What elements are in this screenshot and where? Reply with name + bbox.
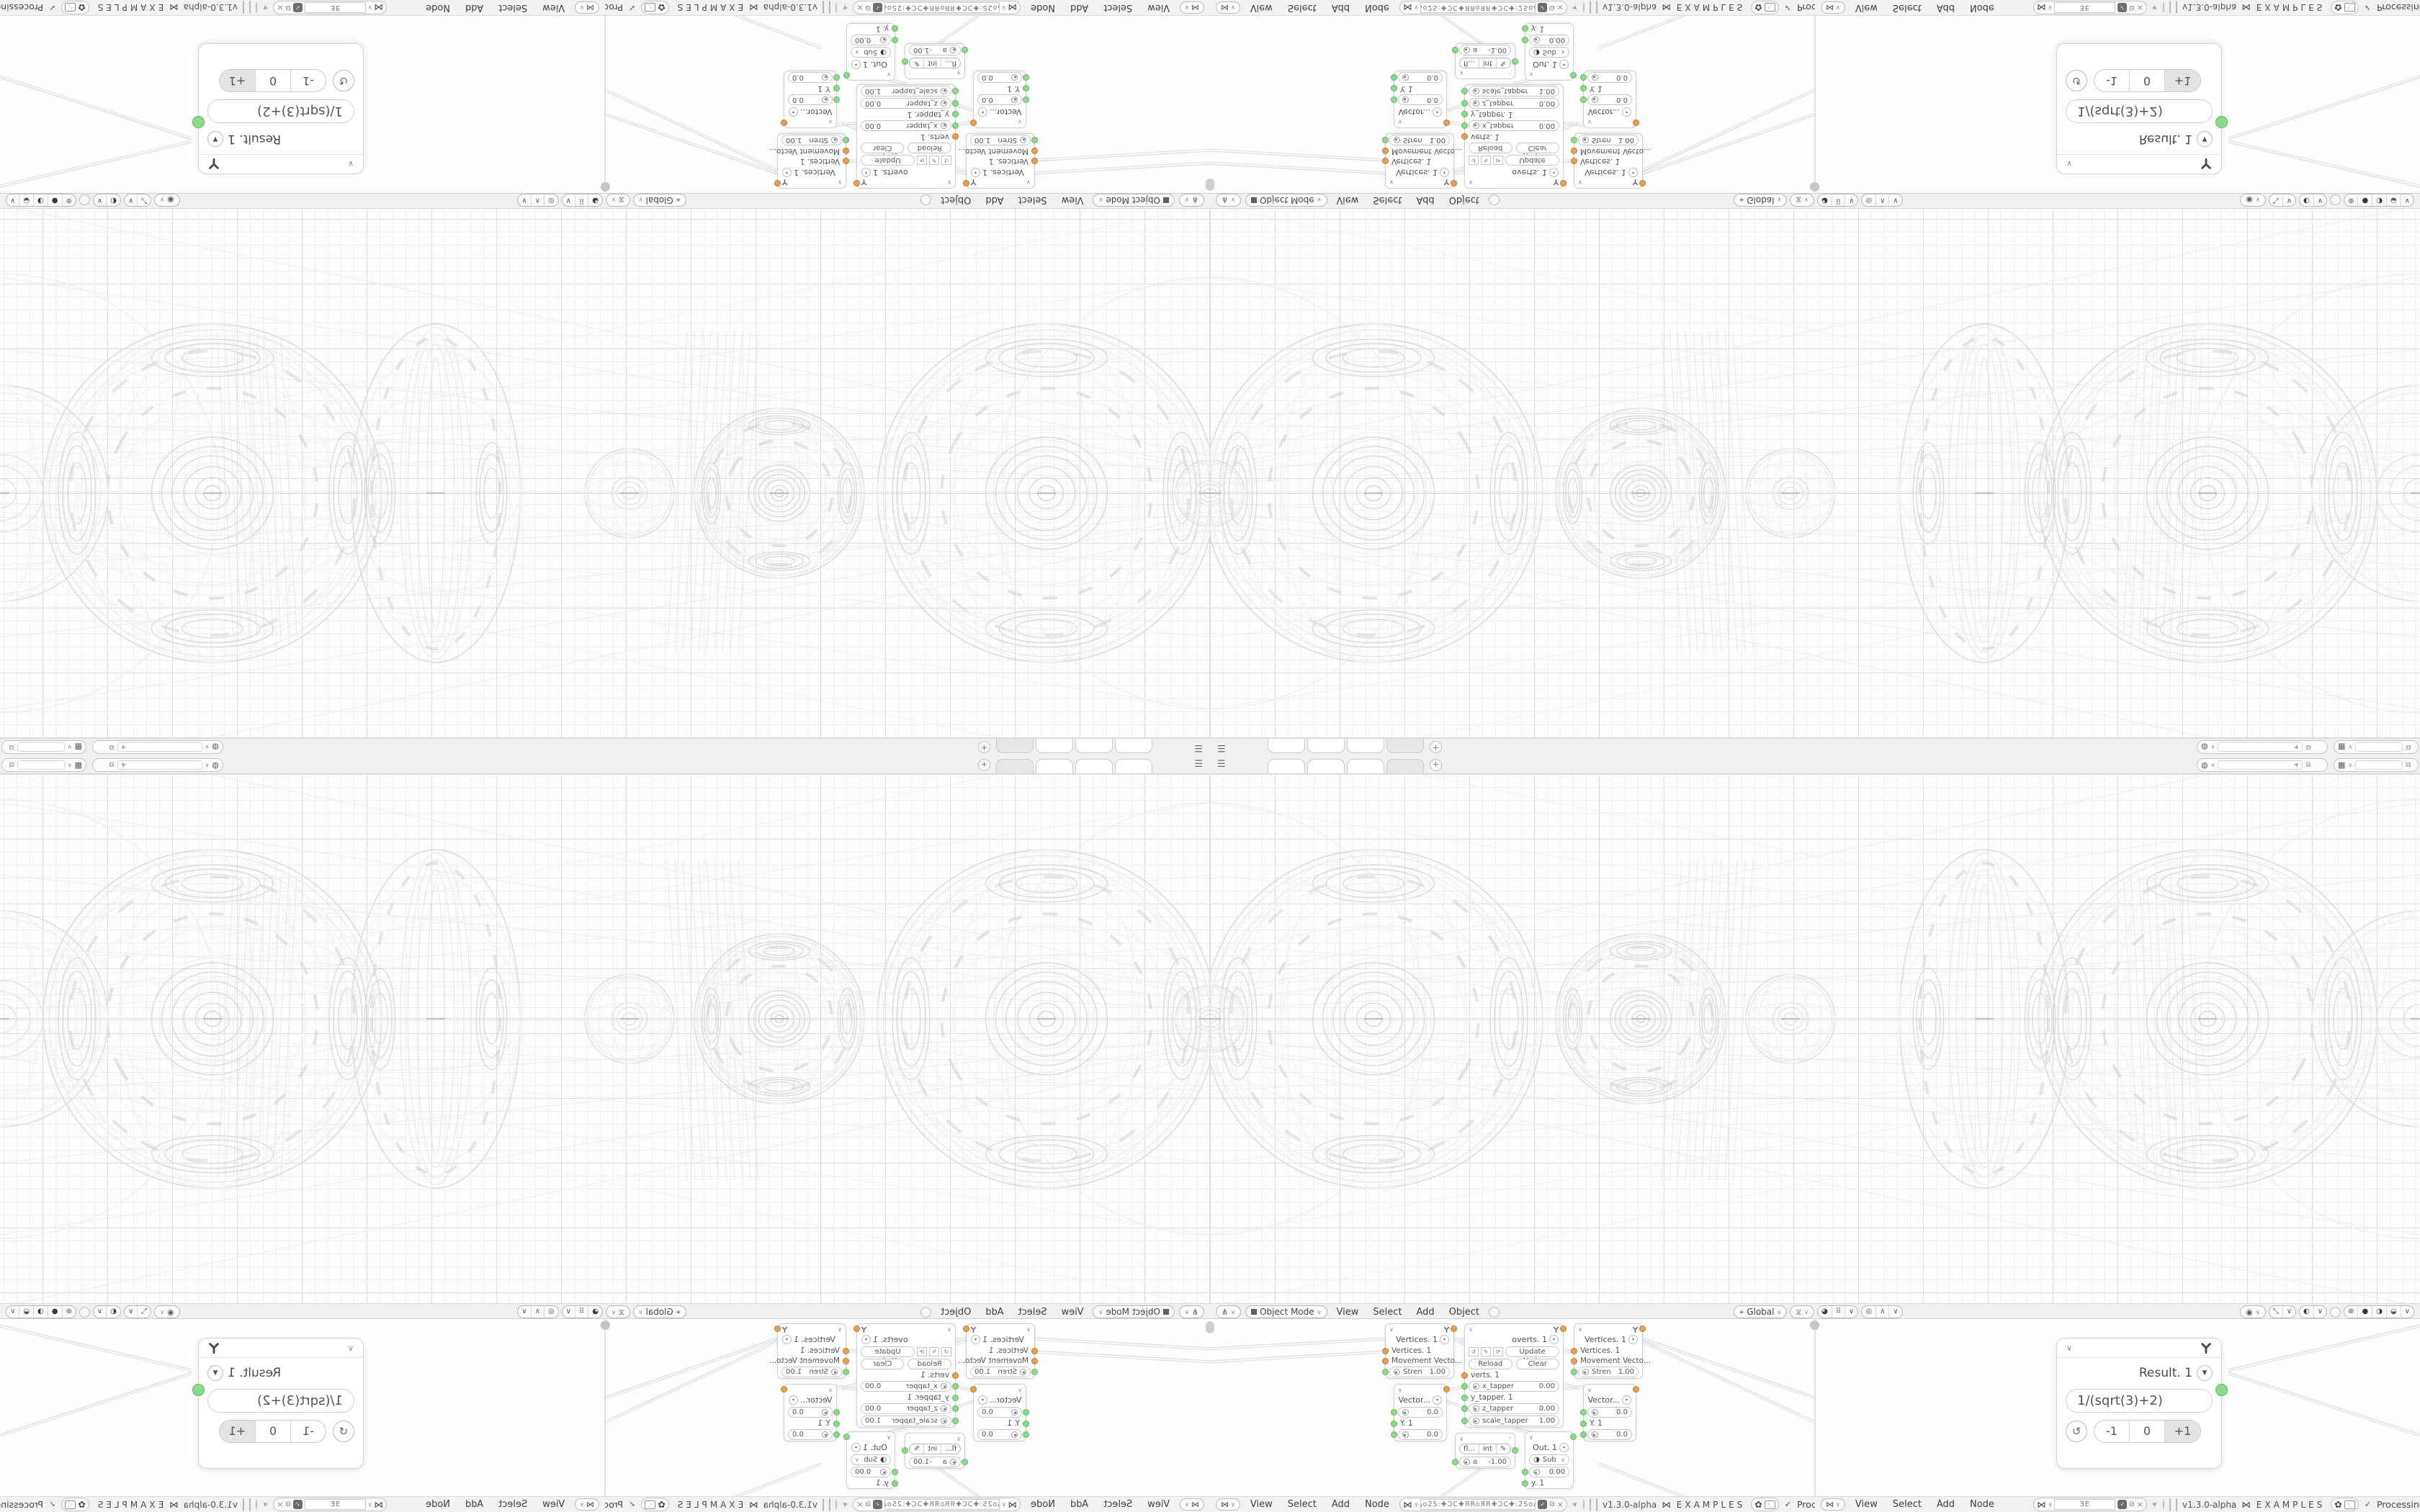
x-field[interactable]: 0.0 [1398, 1407, 1443, 1418]
collapse-icon[interactable]: ∨ [348, 1344, 354, 1353]
output-socket[interactable] [1570, 72, 1577, 78]
node-type-switch[interactable]: ∨· fl...int✎▾ a-1.00 [1455, 43, 1515, 79]
menu-select[interactable]: Select [1888, 1499, 1927, 1510]
scale-tapper-field[interactable]: scale_tapper1.00 [1469, 86, 1559, 96]
title-dropdown[interactable]: ▾ [861, 168, 871, 177]
tab-3[interactable] [1347, 759, 1384, 773]
input-socket[interactable] [952, 133, 959, 140]
copy-icon[interactable]: ⧉ [109, 761, 114, 769]
menu-add[interactable]: Add [1932, 2, 1960, 13]
input-socket[interactable] [952, 1372, 959, 1379]
node-type-switch[interactable]: ∨· fl...int✎▾ a-1.00 [1455, 1433, 1515, 1469]
result-output-socket[interactable] [2215, 116, 2228, 128]
gizmo-control[interactable]: ⤡∨ [124, 1305, 151, 1318]
plus-one-button[interactable]: +1 [220, 1421, 255, 1442]
collapse-icon[interactable]: ∨ [348, 160, 354, 169]
result-panel[interactable]: ∨ Result. 1▼ 1/(sqrt(3)+2) ↺ -1 0 +1 [2056, 1338, 2222, 1469]
input-socket[interactable] [952, 111, 959, 117]
editor-type-button[interactable]: ⋔∨ [1179, 194, 1204, 207]
output-socket[interactable] [1512, 58, 1518, 65]
area-corner-handle[interactable] [1206, 1321, 1210, 1333]
menu-view[interactable]: View [1057, 1307, 1089, 1318]
op-dropdown[interactable]: ◑Sub∨ [851, 1454, 891, 1465]
input-socket[interactable] [1031, 148, 1038, 154]
menu-add[interactable]: Add [1412, 1307, 1440, 1318]
datablock-selector[interactable]: ◍∨ ➤ ⧉ [2197, 740, 2328, 754]
collapse-icon[interactable]: ∨ [2066, 160, 2072, 169]
close-icon[interactable]: × [2136, 3, 2143, 12]
node-out[interactable]: ∨ Out. 1▾ ◑Sub∨ 0.00 y. 1 [1525, 23, 1574, 81]
z-tapper-field[interactable]: z_tapper0.00 [1469, 98, 1559, 109]
input-socket[interactable] [843, 148, 849, 154]
type-segmented-control[interactable]: fl...int✎▾ [909, 58, 961, 68]
a-field[interactable]: a-1.00 [909, 1457, 961, 1467]
mode-dropdown[interactable]: Object Mode∨ [1245, 194, 1327, 207]
circle-toggle[interactable] [2163, 1499, 2164, 1510]
input-socket[interactable] [1571, 1358, 1577, 1364]
cycle-icon[interactable]: ↺ [2066, 70, 2087, 91]
value-field[interactable]: 0.00 [1529, 1467, 1569, 1477]
image-selector[interactable]: ▦∨ ⧉ [2334, 758, 2419, 772]
input-socket[interactable] [1031, 1369, 1038, 1375]
result-panel[interactable]: ∨ Result. 1▼ 1/(sqrt(3)+2) ↺ -1 0 +1 [198, 1338, 364, 1469]
editor-type-button[interactable]: ⋈∨ [1821, 1, 1845, 14]
input-socket[interactable] [1391, 96, 1397, 103]
collapse-icon[interactable]: ∨ [1469, 1326, 1473, 1333]
filter-field[interactable]: oΔo2S:✚ƆC✚ЯRoЯR✚ƆC✚:2SoΔo [884, 1499, 1000, 1510]
op-dropdown[interactable]: ◑Sub∨ [851, 47, 891, 58]
menu-select[interactable]: Select [1283, 1499, 1322, 1510]
orientation-dropdown[interactable]: ⌖Global∨ [633, 1305, 686, 1318]
tab-4-active[interactable] [1386, 759, 1424, 773]
snap-control[interactable]: ◕⠿∨ [1817, 1305, 1858, 1318]
a-field[interactable]: a-1.00 [909, 45, 961, 55]
menu-object[interactable]: Object [1444, 1307, 1484, 1318]
menu-object[interactable]: Object [1444, 195, 1484, 206]
title-dropdown[interactable]: ▾ [851, 60, 861, 69]
refresh-icon[interactable]: ⟳ [1493, 1347, 1503, 1356]
datablock-field[interactable]: ➤ [117, 760, 202, 770]
stren-field[interactable]: Stren1.00 [970, 135, 1031, 145]
plus-one-button[interactable]: +1 [2165, 70, 2200, 91]
terminal-icon[interactable]: ›_ [65, 4, 76, 12]
datablock-field[interactable]: ➤ [2218, 760, 2303, 770]
output-socket[interactable] [1560, 1326, 1567, 1332]
title-dropdown[interactable]: ▾ [1433, 107, 1442, 117]
menu-add[interactable]: Add [1065, 2, 1093, 13]
copy-icon[interactable]: ⧉ [286, 1500, 291, 1508]
title-dropdown[interactable]: ▾ [861, 1335, 871, 1344]
menu-select[interactable]: Select [1098, 2, 1137, 13]
result-output-socket[interactable] [192, 116, 205, 128]
z-tapper-field[interactable]: z_tapper0.00 [861, 1403, 951, 1414]
input-socket[interactable] [1461, 133, 1468, 140]
title-dropdown[interactable]: ▾ [1622, 107, 1631, 117]
shield-check-icon[interactable]: ✓ [293, 3, 302, 12]
filter-field[interactable]: oΔo2S:✚ƆC✚ЯRoЯR✚ƆC✚:2SoΔo [1420, 2, 1536, 13]
refresh-icon[interactable]: ⟳ [917, 1347, 927, 1356]
input-socket[interactable] [1023, 1421, 1029, 1427]
node-vertices-2[interactable]: ∨ Vertices. 1▾ Vertices. 1 Movement Vect… [777, 1323, 846, 1379]
menu-icon[interactable]: ☰ [1194, 759, 1203, 770]
editor-type-button[interactable]: ⋔∨ [1179, 1305, 1204, 1318]
collapse-icon[interactable]: ∨ [1018, 1387, 1022, 1393]
output-socket[interactable] [1633, 1386, 1639, 1392]
circle-toggle[interactable] [835, 2, 837, 13]
reload-button[interactable]: Reload [908, 1359, 952, 1369]
clear-button[interactable]: Clear [861, 1359, 905, 1369]
collapse-icon[interactable]: ∨ [1026, 180, 1031, 186]
input-socket[interactable] [892, 1469, 898, 1475]
snap-control[interactable]: ◕⠿∨ [1817, 194, 1858, 207]
undo-icon[interactable]: ↺ [941, 156, 951, 165]
input-socket[interactable] [1023, 74, 1029, 81]
undo-icon[interactable]: ↺ [1469, 1347, 1479, 1356]
collapse-icon[interactable]: ∨ [1389, 180, 1394, 186]
input-socket[interactable] [843, 1369, 849, 1375]
menu-add[interactable]: Add [1065, 1499, 1093, 1510]
input-socket[interactable] [952, 122, 959, 129]
snap-control[interactable]: ◕⠿∨ [2169, 1498, 2171, 1511]
snap-control[interactable]: ◕⠿∨ [562, 1305, 603, 1318]
menu-node[interactable]: Node [1026, 1499, 1060, 1510]
filter-field[interactable]: ƎE [305, 1499, 366, 1510]
input-socket[interactable] [1382, 1348, 1389, 1354]
shield-check-icon[interactable]: ✓ [1538, 3, 1547, 12]
close-icon[interactable]: × [277, 1500, 283, 1509]
filter-field[interactable]: ƎE [2054, 2, 2115, 13]
input-socket[interactable] [833, 1431, 840, 1438]
minus-one-button[interactable]: -1 [2094, 70, 2130, 91]
pin-icon[interactable]: ➤ [2150, 1500, 2160, 1510]
op-dropdown[interactable]: ◑Sub∨ [1529, 47, 1569, 58]
overlay-control[interactable]: ◐∨ [93, 1305, 121, 1318]
collapse-icon[interactable]: ∨ [956, 71, 961, 77]
update-node-button[interactable]: Update Node [861, 155, 915, 166]
input-socket[interactable] [952, 1418, 959, 1424]
input-socket[interactable] [1452, 47, 1458, 53]
area-divider[interactable] [604, 16, 606, 193]
xray-circle-icon[interactable] [79, 1307, 90, 1318]
title-dropdown[interactable]: ▾ [1559, 60, 1569, 69]
terminal-icon[interactable]: ›_ [65, 1500, 76, 1509]
pin-icon[interactable]: ➤ [260, 1500, 270, 1510]
undo-icon[interactable]: ↺ [1469, 156, 1479, 165]
view-object-types-button[interactable]: ◉∨ [2240, 194, 2265, 207]
close-icon[interactable]: × [1556, 3, 1563, 12]
input-socket[interactable] [833, 1421, 840, 1427]
pivot-dropdown[interactable]: ⧖∨ [606, 194, 630, 207]
node-vertices-2[interactable]: ∨ Vertices. 1▾ Vertices. 1 Movement Vect… [1574, 1323, 1643, 1379]
node-overts[interactable]: ∨ overts. 1▾ ↺✎⟳ Update Node Reload Clea… [856, 1323, 956, 1428]
filter-field[interactable]: ƎE [2054, 1499, 2115, 1510]
z-field[interactable]: 0.0 [1587, 1429, 1632, 1440]
title-dropdown[interactable]: ▾ [782, 1335, 792, 1344]
z-field[interactable]: 0.0 [977, 1429, 1022, 1440]
menu-view[interactable]: View [1332, 195, 1364, 206]
menu-node[interactable]: Node [1965, 2, 1999, 13]
value-field[interactable]: 0.00 [851, 35, 891, 45]
output-socket[interactable] [902, 1447, 908, 1454]
image-field[interactable] [17, 760, 65, 770]
node-out[interactable]: ∨ Out. 1▾ ◑Sub∨ 0.00 y. 1 [846, 1431, 895, 1489]
viewport-3d[interactable] [1210, 209, 2420, 738]
title-dropdown[interactable]: ▾ [978, 107, 987, 117]
add-tab-button[interactable]: + [1430, 759, 1442, 771]
node-vector-2[interactable]: ∨ Vector...▾ 0.0 Y. 1 0.0 [784, 1384, 837, 1441]
flower-icon[interactable]: ✿ [78, 1499, 85, 1510]
input-socket[interactable] [1522, 37, 1528, 43]
area-divider-handle[interactable] [1810, 1320, 1819, 1330]
input-socket[interactable] [1522, 25, 1528, 32]
title-dropdown[interactable]: ▾ [1628, 168, 1638, 177]
xray-circle-icon[interactable] [2330, 1307, 2341, 1318]
update-node-button[interactable]: Update Node [1505, 155, 1559, 166]
x-tapper-field[interactable]: x_tapper0.00 [1469, 1381, 1559, 1392]
menu-add[interactable]: Add [1327, 1499, 1355, 1510]
minus-one-button[interactable]: -1 [290, 1421, 326, 1442]
menu-icon[interactable]: ☰ [1194, 742, 1203, 753]
image-selector[interactable]: ▦∨ ⧉ [1, 758, 86, 772]
input-socket[interactable] [1461, 111, 1468, 117]
input-socket[interactable] [1031, 137, 1038, 143]
node-vertices-2[interactable]: ∨ Vertices. 1▾ Vertices. 1 Movement Vect… [1574, 133, 1643, 189]
expression-field[interactable]: 1/(sqrt(3)+2) [2066, 1389, 2213, 1413]
view-object-types-button[interactable]: ◉∨ [2240, 1305, 2265, 1318]
output-socket[interactable] [1639, 1326, 1646, 1332]
datablock-field[interactable]: ➤ [117, 742, 202, 752]
tab-3[interactable] [1347, 739, 1384, 753]
terminal-icon[interactable]: ›_ [2344, 1500, 2355, 1509]
result-dropdown[interactable]: ▼ [207, 1365, 223, 1381]
input-socket[interactable] [1382, 1369, 1389, 1375]
datablock-selector[interactable]: ◍∨ ➤ ⧉ [92, 740, 223, 754]
menu-view[interactable]: View [1142, 2, 1175, 13]
result-dropdown[interactable]: ▼ [2197, 131, 2213, 147]
collapse-icon[interactable]: ∨ [1459, 71, 1464, 77]
snap-control[interactable]: ◕⠿∨ [249, 1, 251, 14]
menu-view[interactable]: View [1245, 1499, 1278, 1510]
input-socket[interactable] [1580, 1409, 1587, 1416]
output-socket[interactable] [1570, 1434, 1577, 1440]
shading-mode-control[interactable]: ⊕●◑◒∨ [2344, 194, 2414, 207]
x-field[interactable]: 0.0 [788, 1407, 833, 1418]
shield-check-icon[interactable]: ✓ [2117, 3, 2127, 12]
orientation-dropdown[interactable]: ⌖Global∨ [633, 194, 686, 207]
circle-toggle[interactable] [2163, 2, 2164, 13]
menu-view[interactable]: View [1245, 2, 1278, 13]
area-divider-handle[interactable] [601, 1320, 610, 1330]
node-type-switch[interactable]: ∨· fl...int✎▾ a-1.00 [905, 1433, 965, 1469]
node-overts[interactable]: ∨ overts. 1▾ ↺✎⟳ Update Node Reload Clea… [1464, 1323, 1564, 1428]
refresh-icon[interactable]: ⟳ [1493, 156, 1503, 165]
output-socket[interactable] [853, 1326, 860, 1332]
input-socket[interactable] [1571, 1369, 1577, 1375]
add-tab-button[interactable]: + [978, 759, 990, 771]
input-socket[interactable] [1461, 100, 1468, 107]
output-socket[interactable] [1451, 180, 1457, 186]
proportional-edit-control[interactable]: ◎∧∨ [1861, 194, 1902, 207]
circle-toggle[interactable] [835, 1499, 837, 1510]
input-socket[interactable] [1031, 1358, 1038, 1364]
input-socket[interactable] [1382, 148, 1389, 154]
node-vertices-1[interactable]: ∨ Vertices. 1▾ Vertices. 1 Movement Vect… [966, 1323, 1035, 1379]
area-divider[interactable] [1814, 16, 1816, 193]
node-vector-2[interactable]: ∨ Vector...▾ 0.0 Y. 1 0.0 [784, 71, 837, 128]
output-socket[interactable] [1560, 180, 1567, 186]
pivot-dropdown[interactable]: ⧖∨ [606, 1305, 630, 1318]
node-overts[interactable]: ∨ overts. 1▾ ↺✎⟳ Update Node Reload Clea… [1464, 84, 1564, 189]
copy-icon[interactable]: ⧉ [1549, 4, 1554, 12]
copy-icon[interactable]: ⧉ [866, 1500, 871, 1508]
node-editor-region[interactable]: ∨ Vertices. 1▾ Vertices. 1 Movement Vect… [1210, 16, 2420, 193]
datablock-field[interactable]: ➤ [2218, 742, 2303, 752]
image-selector[interactable]: ▦∨ ⧉ [2334, 740, 2419, 754]
output-socket[interactable] [853, 180, 860, 186]
z-field[interactable]: 0.0 [1398, 72, 1443, 83]
clear-button[interactable]: Clear [1516, 1359, 1560, 1369]
input-socket[interactable] [1023, 1431, 1029, 1438]
gizmo-control[interactable]: ⤡∨ [2269, 194, 2296, 207]
collapse-icon[interactable]: ∨ [1469, 180, 1473, 186]
tab-2[interactable] [1307, 739, 1345, 753]
collapse-icon[interactable]: ∨ [828, 120, 833, 126]
pin-icon[interactable]: ➤ [260, 3, 270, 13]
type-segmented-control[interactable]: fl...int✎▾ [1459, 58, 1511, 68]
input-socket[interactable] [1031, 158, 1038, 164]
filter-field[interactable]: oΔo2S:✚ƆC✚ЯRoЯR✚ƆC✚:2SoΔo [1420, 1499, 1536, 1510]
pin-icon[interactable]: ➤ [118, 742, 128, 752]
flower-icon[interactable]: ✿ [78, 2, 85, 13]
editor-type-button[interactable]: ⋈∨ [1180, 1, 1204, 14]
circle-toggle[interactable] [256, 2, 257, 13]
input-socket[interactable] [1031, 1348, 1038, 1354]
flower-icon[interactable]: ✿ [658, 2, 665, 13]
collapse-icon[interactable]: ∨ [1026, 1326, 1031, 1333]
input-socket[interactable] [1571, 1348, 1577, 1354]
proportional-edit-control[interactable]: ◎∧∨ [517, 194, 558, 207]
node-vector[interactable]: ∨ Vector...▾ 0.0 Y. 1 0.0 [1394, 71, 1447, 128]
result-output-socket[interactable] [192, 1384, 205, 1396]
shading-mode-control[interactable]: ⊕●◑◒∨ [6, 1305, 76, 1318]
copy-icon[interactable]: ⧉ [1549, 1500, 1554, 1508]
input-socket[interactable] [1391, 74, 1397, 81]
orientation-dropdown[interactable]: ⌖Global∨ [1734, 1305, 1787, 1318]
circle-toggle[interactable] [256, 1499, 257, 1510]
input-socket[interactable] [1461, 1395, 1468, 1401]
input-socket[interactable] [833, 85, 840, 91]
collapse-icon[interactable]: ∨ [887, 1434, 891, 1441]
menu-view[interactable]: View [1850, 2, 1883, 13]
result-panel[interactable]: ∨ Result. 1▼ 1/(sqrt(3)+2) ↺ -1 0 +1 [2056, 43, 2222, 174]
stren-field[interactable]: Stren1.00 [1389, 135, 1450, 145]
input-socket[interactable] [1461, 122, 1468, 129]
pin-icon[interactable]: ➤ [118, 760, 128, 770]
plus-one-button[interactable]: +1 [2165, 1421, 2200, 1442]
editor-type-button[interactable]: ⋈∨ [575, 1498, 599, 1511]
output-socket[interactable] [1443, 1386, 1450, 1392]
reload-button[interactable]: Reload [908, 143, 952, 153]
circle-toggle[interactable] [1583, 1499, 1585, 1510]
editor-type-button[interactable]: ⋈∨ [1180, 1498, 1204, 1511]
mode-dropdown[interactable]: Object Mode∨ [1093, 194, 1174, 207]
filter-field[interactable]: ƎE [305, 2, 366, 13]
viewport-3d[interactable] [1210, 774, 2420, 1303]
title-dropdown[interactable]: ▾ [1440, 1335, 1449, 1344]
image-field[interactable] [17, 742, 65, 752]
cycle-icon[interactable]: ↺ [333, 1421, 354, 1442]
copy-icon[interactable]: ⧉ [2305, 743, 2311, 751]
node-vector[interactable]: ∨ Vector...▾ 0.0 Y. 1 0.0 [973, 1384, 1026, 1441]
editor-type-button[interactable]: ⋈∨ [1821, 1498, 1845, 1511]
output-socket[interactable] [963, 180, 969, 186]
menu-select[interactable]: Select [1368, 195, 1407, 206]
overlay-control[interactable]: ◐∨ [243, 1, 244, 14]
input-socket[interactable] [843, 158, 849, 164]
snap-control[interactable]: ◕⠿∨ [1590, 1, 1591, 14]
output-socket[interactable] [902, 58, 908, 65]
edit-icon[interactable]: ✎ [1481, 1347, 1491, 1356]
title-dropdown[interactable]: ▾ [1559, 1443, 1569, 1452]
title-dropdown[interactable]: ▾ [789, 107, 798, 117]
edit-icon[interactable]: ✎ [929, 156, 939, 165]
collapse-icon[interactable]: ∨ [1587, 1387, 1592, 1393]
scale-tapper-field[interactable]: scale_tapper1.00 [861, 1416, 951, 1426]
refresh-icon[interactable]: ⟳ [917, 156, 927, 165]
pivot-dropdown[interactable]: ⧖∨ [1790, 1305, 1814, 1318]
input-socket[interactable] [962, 1459, 968, 1465]
circle-toggle[interactable] [1583, 2, 1585, 13]
editor-type-button[interactable]: ⋈∨ [1216, 1, 1240, 14]
overlay-control[interactable]: ◐∨ [2299, 1305, 2327, 1318]
input-socket[interactable] [1023, 85, 1029, 91]
menu-add[interactable]: Add [980, 195, 1008, 206]
annotation-circle-icon[interactable] [920, 195, 931, 206]
menu-select[interactable]: Select [493, 1499, 532, 1510]
area-divider[interactable] [1814, 1319, 1816, 1496]
flower-icon[interactable]: ✿ [2334, 2, 2341, 13]
menu-add[interactable]: Add [460, 2, 488, 13]
collapse-icon[interactable]: ∨ [887, 72, 891, 78]
pin-icon[interactable]: ➤ [1570, 1500, 1580, 1510]
input-socket[interactable] [1580, 1431, 1587, 1438]
input-socket[interactable] [952, 1383, 959, 1390]
x-field[interactable]: 0.0 [1398, 94, 1443, 105]
collapse-icon[interactable]: ∨ [1587, 120, 1592, 126]
menu-view[interactable]: View [1057, 195, 1089, 206]
overlay-control[interactable]: ◐∨ [823, 1, 824, 14]
node-vertices-1[interactable]: ∨ Vertices. 1▾ Vertices. 1 Movement Vect… [1385, 1323, 1454, 1379]
shield-check-icon[interactable]: ✓ [293, 1500, 302, 1509]
node-vector-2[interactable]: ∨ Vector...▾ 0.0 Y. 1 0.0 [1583, 1384, 1636, 1441]
output-socket[interactable] [1639, 180, 1646, 186]
input-socket[interactable] [1023, 1409, 1029, 1416]
collapse-icon[interactable]: ∨ [947, 180, 951, 186]
orientation-dropdown[interactable]: ⌖Global∨ [1734, 194, 1787, 207]
update-node-button[interactable]: Update Node [861, 1346, 915, 1357]
input-socket[interactable] [1580, 1421, 1587, 1427]
cycle-icon[interactable]: ↺ [333, 70, 354, 91]
overlay-control[interactable]: ◐∨ [2176, 1, 2177, 14]
snap-control[interactable]: ◕⠿∨ [1590, 1498, 1591, 1511]
output-socket[interactable] [970, 120, 977, 126]
menu-select[interactable]: Select [1368, 1307, 1407, 1318]
tab-1[interactable] [1268, 739, 1305, 753]
input-socket[interactable] [1461, 88, 1468, 94]
snap-control[interactable]: ◕⠿∨ [829, 1, 830, 14]
collapse-icon[interactable]: ∨ [956, 1436, 961, 1442]
stren-field[interactable]: Stren1.00 [970, 1367, 1031, 1377]
